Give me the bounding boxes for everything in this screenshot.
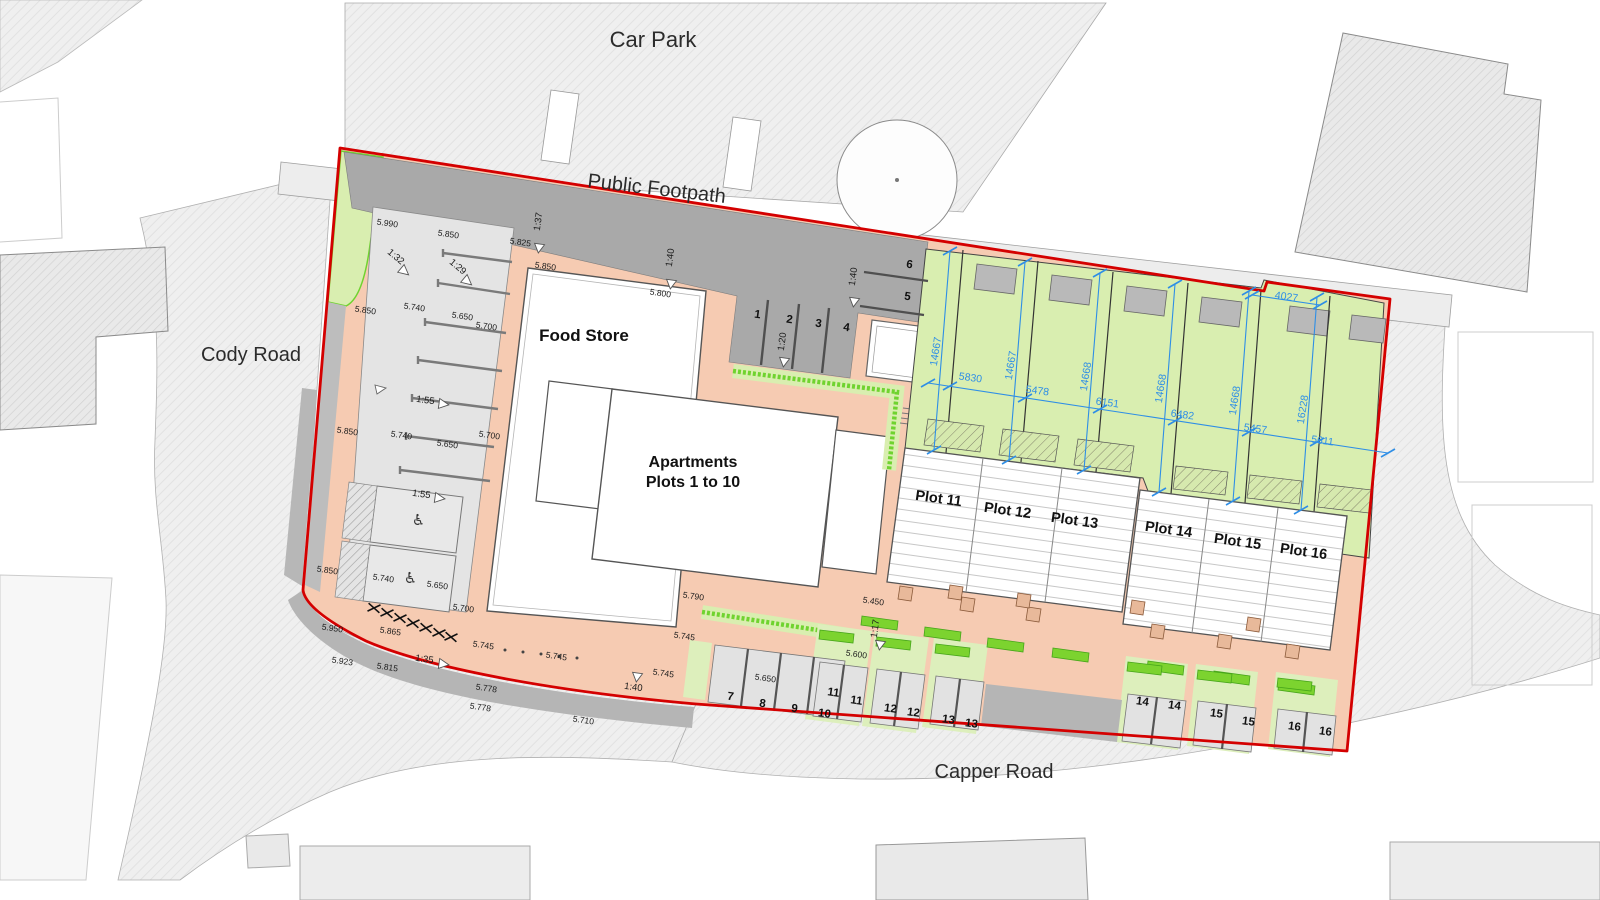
apartments-label-line2: Plots 1 to 10 (646, 474, 740, 491)
context-building-bottom-4 (246, 834, 290, 868)
context-building-bottom-3 (1390, 842, 1600, 900)
bay-number: 13 (964, 717, 978, 731)
bay-number: 16 (1287, 720, 1301, 734)
bay-number: 13 (941, 713, 955, 727)
bay-number: 15 (1241, 715, 1256, 729)
bay-number: 10 (817, 707, 831, 721)
bay-number: 11 (850, 694, 864, 708)
food-store-label: Food Store (539, 326, 629, 345)
capper-road-label: Capper Road (935, 761, 1054, 783)
site-plan-canvas: ♿ ♿ (0, 0, 1600, 900)
terrace-block-plots-11-13 (887, 448, 1140, 612)
bay-number: 12 (883, 702, 897, 716)
context-building-bottom-2 (876, 838, 1088, 900)
cody-road-label: Cody Road (201, 344, 301, 366)
bay-number: 16 (1318, 725, 1332, 739)
bay-number: 12 (906, 706, 920, 720)
tree-trunk-dot (895, 178, 899, 182)
bay-number: 14 (1135, 695, 1150, 709)
plots-and-gardens (887, 249, 1386, 659)
wheelchair-icon: ♿ (403, 568, 419, 588)
bay-number: 11 (827, 686, 841, 700)
car-park-label: Car Park (610, 27, 698, 52)
site-plan-drawing: ♿ ♿ (0, 0, 1600, 900)
wheelchair-icon: ♿ (411, 510, 427, 530)
context-building-bottom-1 (300, 846, 530, 900)
bay-number: 15 (1209, 707, 1224, 721)
bay-number: 14 (1167, 699, 1182, 713)
apartments-label-line1: Apartments (649, 454, 738, 471)
